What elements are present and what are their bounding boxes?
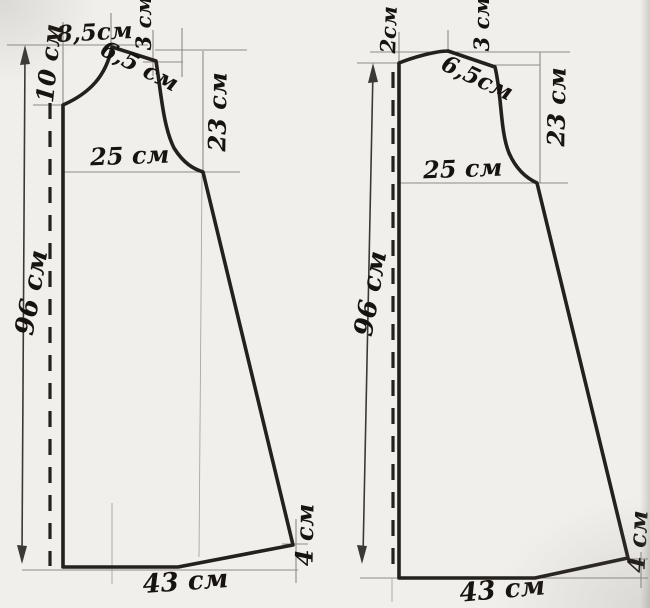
front-length-label: 96 см — [10, 248, 54, 338]
arrow-up-icon — [20, 45, 30, 65]
front-shoulder-drop-label: 3 см — [131, 0, 156, 50]
arrow-down-icon — [17, 545, 27, 564]
back-neck-depth-label: 2см — [375, 6, 402, 55]
front-measurement-labels: 8,5см 3 см 10 см 6,5 см 23 см 25 см 96 с… — [10, 0, 320, 600]
pattern-piece-front: 8,5см 3 см 10 см 6,5 см 23 см 25 см 96 с… — [7, 0, 320, 600]
back-length-label: 96 см — [349, 249, 393, 339]
back-armhole-depth-label: 23 см — [541, 67, 571, 148]
front-chest-width-label: 25 см — [89, 140, 170, 172]
back-shoulder-length-label: 6,5см — [437, 50, 517, 107]
front-neck-depth-label: 10 см — [30, 22, 67, 104]
back-shoulder-drop-label: 3 см — [469, 0, 494, 51]
front-armhole-depth-label: 23 см — [202, 72, 232, 153]
back-hem-rise-label: 4 см — [621, 510, 650, 574]
back-hem-width-label: 43 см — [458, 571, 546, 608]
front-hem-width-label: 43 см — [142, 564, 230, 600]
pattern-draft-canvas: 8,5см 3 см 10 см 6,5 см 23 см 25 см 96 с… — [0, 0, 650, 608]
arrow-up-icon — [368, 63, 378, 83]
front-side-vertical-guide — [199, 172, 202, 557]
back-chest-width-label: 25 см — [422, 153, 503, 185]
front-outline-path — [63, 47, 293, 567]
pattern-piece-back: 2см 3 см 6,5см 23 см 25 см 96 см 43 см 4… — [349, 0, 650, 608]
arrow-down-icon — [357, 545, 367, 564]
front-hem-rise-label: 4 см — [289, 503, 319, 566]
pattern-draft-page: 8,5см 3 см 10 см 6,5 см 23 см 25 см 96 с… — [0, 0, 650, 608]
back-outline-path — [399, 51, 628, 578]
